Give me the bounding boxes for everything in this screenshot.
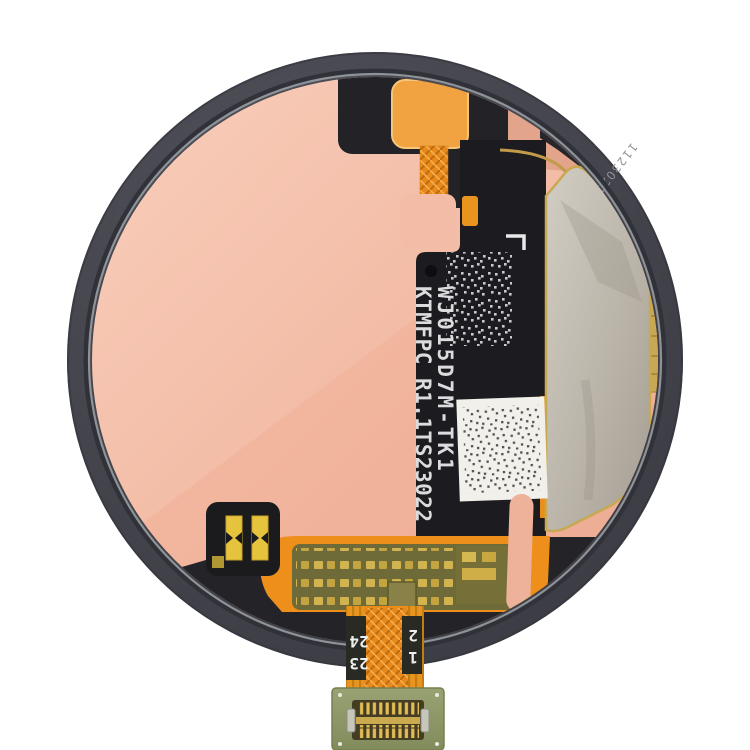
coil-pad	[400, 194, 456, 248]
part-number-text: WJ015D7M-TK1	[433, 286, 457, 474]
model-code-text: KTMFPC R1.1TS23022	[411, 286, 435, 523]
smd-pads	[296, 548, 456, 606]
flex-hole	[425, 265, 437, 277]
gold-pad	[462, 568, 496, 580]
ribbon-pin-label: 23	[349, 654, 368, 673]
ribbon-pin-label: 24	[349, 632, 368, 651]
smartwatch-display-assembly: 11230217 WJ015D7M-TK1 KTMFPC R1.1TS23022	[0, 0, 750, 750]
datamatrix-white-label	[456, 396, 548, 501]
flex-edge-bit	[462, 196, 478, 226]
salmon-gasket	[506, 494, 534, 613]
gold-pad	[482, 552, 496, 562]
gold-spring-contacts	[206, 502, 280, 576]
ic-chip	[388, 582, 416, 608]
gold-pad	[462, 552, 476, 562]
flex-ribbon-cable: 24 23 2 1	[346, 606, 424, 694]
ribbon-pin-label: 1	[408, 648, 418, 667]
nfc-flex-tab	[392, 80, 468, 148]
connector-pcb	[332, 688, 444, 750]
watch-back-photo: 11230217 WJ015D7M-TK1 KTMFPC R1.1TS23022	[0, 0, 750, 750]
ribbon-pin-label: 2	[408, 626, 418, 645]
